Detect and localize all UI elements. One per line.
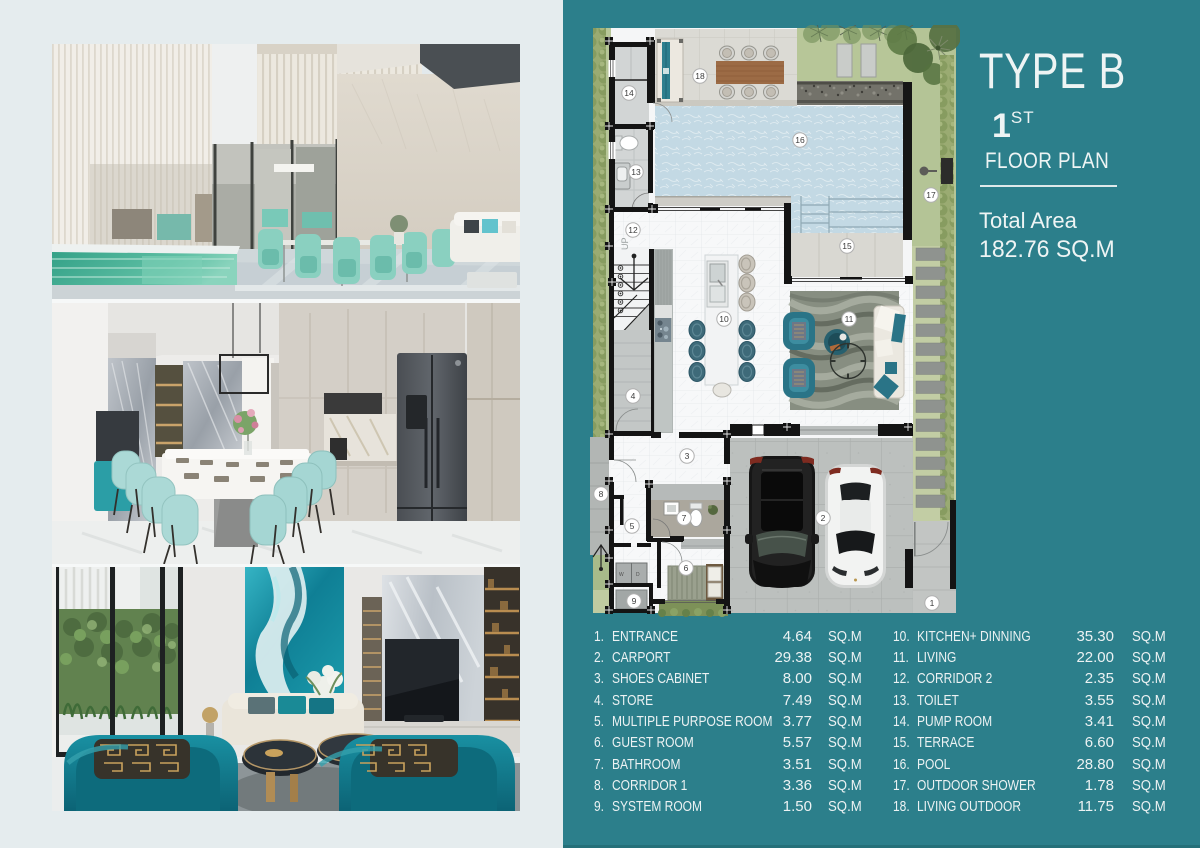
svg-text:17: 17: [926, 190, 936, 200]
svg-text:18: 18: [695, 71, 705, 81]
svg-text:14: 14: [624, 88, 634, 98]
svg-text:2: 2: [821, 513, 826, 523]
svg-text:4: 4: [631, 391, 636, 401]
svg-text:13: 13: [631, 167, 641, 177]
svg-text:15: 15: [842, 241, 852, 251]
svg-text:5: 5: [630, 521, 635, 531]
svg-text:W: W: [619, 572, 624, 578]
svg-text:7: 7: [682, 513, 687, 523]
svg-text:9: 9: [632, 596, 637, 606]
svg-text:11: 11: [845, 314, 854, 324]
svg-text:3: 3: [685, 451, 690, 461]
svg-text:D: D: [636, 572, 640, 578]
svg-text:10: 10: [719, 314, 729, 324]
svg-text:8: 8: [599, 489, 604, 499]
svg-text:UP: UP: [620, 237, 630, 250]
svg-text:1: 1: [930, 598, 935, 608]
svg-text:16: 16: [795, 135, 805, 145]
svg-text:6: 6: [684, 563, 689, 573]
svg-text:12: 12: [628, 225, 638, 235]
